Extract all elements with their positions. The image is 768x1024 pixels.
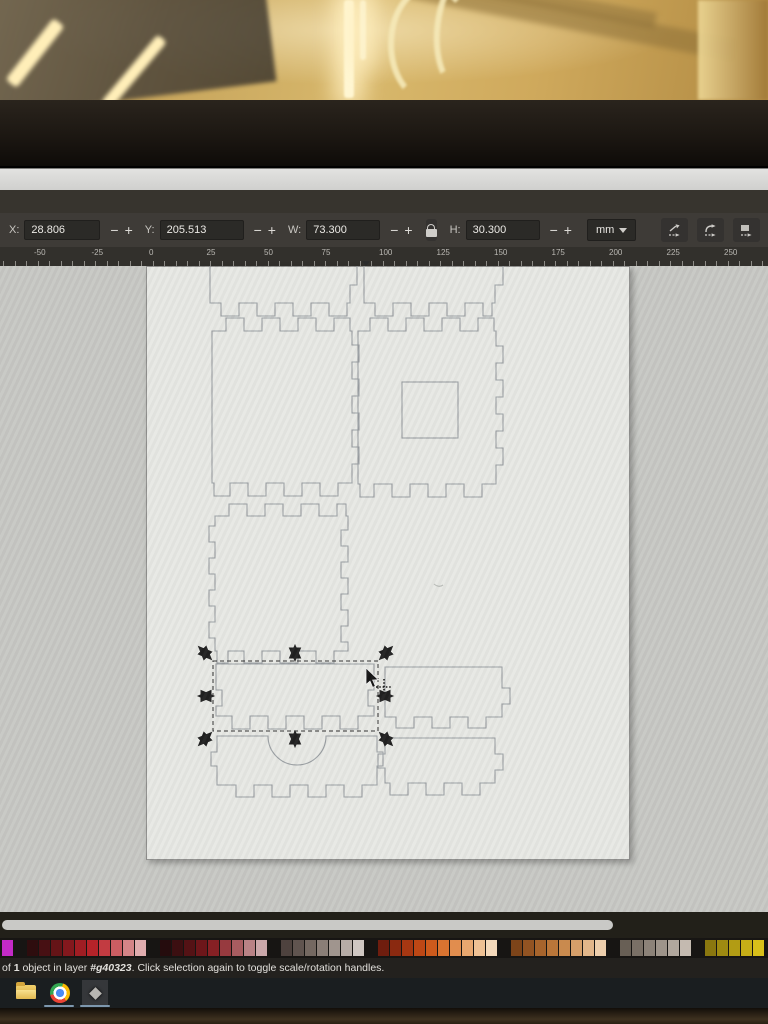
palette-swatch[interactable] <box>27 940 38 956</box>
selection-box[interactable] <box>213 661 378 731</box>
palette-swatch[interactable] <box>111 940 122 956</box>
ruler-label: 0 <box>149 248 153 257</box>
palette-swatch[interactable] <box>486 940 497 956</box>
palette-group <box>160 940 268 956</box>
palette-swatch[interactable] <box>329 940 340 956</box>
palette-swatch[interactable] <box>305 940 316 956</box>
screen-top-strip <box>0 168 768 191</box>
dust-mark <box>434 584 443 586</box>
window-chrome-strip <box>0 190 768 213</box>
palette-swatch[interactable] <box>208 940 219 956</box>
palette-swatch[interactable] <box>426 940 437 956</box>
ruler-label: 200 <box>609 248 622 257</box>
status-text: object in layer <box>20 962 91 974</box>
palette-group <box>705 940 765 956</box>
panel-outline-selected[interactable] <box>216 664 374 729</box>
spinner-minus-button[interactable]: − <box>107 223 121 237</box>
ruler-label: -25 <box>92 248 104 257</box>
move-gradients-toggle[interactable] <box>733 218 760 242</box>
ceiling-photo <box>0 0 768 100</box>
canvas-area[interactable] <box>0 266 768 912</box>
x-spinner: − + <box>107 223 135 237</box>
y-spinner: − + <box>251 223 279 237</box>
taskbar <box>0 978 768 1008</box>
ruler-label: 25 <box>207 248 216 257</box>
palette-swatch[interactable] <box>729 940 740 956</box>
h-label: H: <box>450 224 461 236</box>
palette-swatch[interactable] <box>63 940 74 956</box>
active-app-underline <box>80 1005 110 1007</box>
selection-handle-bottom-left[interactable] <box>200 734 210 744</box>
palette-swatch[interactable] <box>341 940 352 956</box>
scale-rounded-corners-toggle[interactable] <box>697 218 724 242</box>
status-bar: of 1 object in layer #g40323. Click sele… <box>0 958 768 978</box>
palette-swatch[interactable] <box>741 940 752 956</box>
palette-swatch[interactable] <box>75 940 86 956</box>
panel-outline-top-right[interactable] <box>364 266 503 316</box>
palette-swatch[interactable] <box>244 940 255 956</box>
y-field-group: Y: 205.513 − + <box>136 220 279 240</box>
panel-outline-right-middle[interactable] <box>385 667 510 728</box>
diamond-app-button[interactable] <box>82 980 108 1006</box>
color-palette <box>0 938 768 958</box>
padlock-icon <box>426 229 437 237</box>
palette-swatch[interactable] <box>571 940 582 956</box>
ruler-label: 50 <box>264 248 273 257</box>
rounded-corner-icon <box>703 223 719 237</box>
ruler-label: 75 <box>322 248 331 257</box>
panel-square-hole[interactable] <box>402 382 458 438</box>
panel-outline-large-right[interactable] <box>358 318 503 497</box>
monitor-top-bezel <box>0 100 768 168</box>
palette-swatch[interactable] <box>378 940 389 956</box>
spinner-plus-button[interactable]: + <box>401 223 415 237</box>
palette-swatch[interactable] <box>632 940 643 956</box>
palette-swatch[interactable] <box>402 940 413 956</box>
transform-toggle-buttons <box>652 218 768 242</box>
monitor-bottom-bezel <box>0 1008 768 1024</box>
palette-swatch[interactable] <box>668 940 679 956</box>
lamp-tube <box>360 0 366 60</box>
palette-swatch[interactable] <box>51 940 62 956</box>
h-input[interactable]: 30.300 <box>466 220 540 240</box>
palette-swatch[interactable] <box>474 940 485 956</box>
palette-swatch[interactable] <box>583 940 594 956</box>
palette-swatch[interactable] <box>2 940 13 956</box>
x-input[interactable]: 28.806 <box>24 220 100 240</box>
palette-swatch[interactable] <box>462 940 473 956</box>
palette-swatch[interactable] <box>644 940 655 956</box>
scale-stroke-width-toggle[interactable] <box>661 218 688 242</box>
palette-swatch[interactable] <box>256 940 267 956</box>
palette-swatch[interactable] <box>220 940 231 956</box>
palette-swatch[interactable] <box>172 940 183 956</box>
spinner-plus-button[interactable]: + <box>561 223 575 237</box>
palette-swatch[interactable] <box>656 940 667 956</box>
mouse-cursor <box>366 668 378 687</box>
panel-outline-middle-tall[interactable] <box>209 504 348 663</box>
status-layer-name: #g40323 <box>90 962 131 974</box>
palette-swatch[interactable] <box>595 940 606 956</box>
palette-group <box>2 940 14 956</box>
palette-swatch[interactable] <box>184 940 195 956</box>
h-field-group: H: 30.300 − + <box>441 220 575 240</box>
ruler-label: 100 <box>379 248 392 257</box>
w-spinner: − + <box>387 223 415 237</box>
palette-group <box>378 940 498 956</box>
ruler-label: 150 <box>494 248 507 257</box>
gradient-square-icon <box>739 223 755 237</box>
wall-pillar <box>698 0 768 100</box>
palette-swatch[interactable] <box>511 940 522 956</box>
y-label: Y: <box>145 224 155 236</box>
ruler[interactable]: -50-250255075100125150175200225250 <box>0 247 768 266</box>
monitor-photo: X: 28.806 − + Y: 205.513 − + W: 73.300 −… <box>0 0 768 1024</box>
spinner-plus-button[interactable]: + <box>122 223 136 237</box>
spinner-minus-button[interactable]: − <box>547 223 561 237</box>
panel-outline-top-left[interactable] <box>210 266 357 316</box>
palette-swatch[interactable] <box>317 940 328 956</box>
ruler-label: 225 <box>667 248 680 257</box>
palette-swatch[interactable] <box>293 940 304 956</box>
spinner-minus-button[interactable]: − <box>251 223 265 237</box>
drawing-svg <box>0 266 768 912</box>
palette-swatch[interactable] <box>680 940 691 956</box>
status-text: . Click selection again to toggle scale/… <box>132 962 385 974</box>
palette-group <box>620 940 692 956</box>
tool-controls-bar: X: 28.806 − + Y: 205.513 − + W: 73.300 −… <box>0 213 768 247</box>
palette-swatch[interactable] <box>717 940 728 956</box>
chevron-down-icon <box>619 228 627 233</box>
palette-group <box>27 940 147 956</box>
palette-swatch[interactable] <box>196 940 207 956</box>
palette-group <box>281 940 365 956</box>
palette-swatch[interactable] <box>135 940 146 956</box>
selection-handle-top-right[interactable] <box>381 648 391 658</box>
lamp-tube <box>344 0 354 98</box>
palette-swatch[interactable] <box>547 940 558 956</box>
palette-swatch[interactable] <box>535 940 546 956</box>
selection-handle-top-left[interactable] <box>200 648 210 658</box>
palette-swatch[interactable] <box>39 940 50 956</box>
unit-dropdown[interactable]: mm <box>587 219 636 241</box>
folder-icon[interactable] <box>16 985 36 999</box>
panel-outline-bottom-left-notched[interactable] <box>211 736 383 797</box>
palette-swatch[interactable] <box>523 940 534 956</box>
palette-swatch[interactable] <box>753 940 764 956</box>
spinner-minus-button[interactable]: − <box>387 223 401 237</box>
selection-handle-bottom-right[interactable] <box>381 734 391 744</box>
ruler-label: 250 <box>724 248 737 257</box>
ruler-label: 175 <box>552 248 565 257</box>
palette-swatch[interactable] <box>414 940 425 956</box>
h-spinner: − + <box>547 223 575 237</box>
palette-group <box>511 940 607 956</box>
scale-stroke-icon <box>667 223 683 237</box>
panel-outline-large-left[interactable] <box>212 318 359 496</box>
palette-swatch[interactable] <box>353 940 364 956</box>
palette-swatch[interactable] <box>559 940 570 956</box>
unit-value: mm <box>596 224 614 236</box>
lock-aspect-ratio-button[interactable] <box>426 219 437 241</box>
status-text: of <box>2 962 14 974</box>
ruler-label: 125 <box>437 248 450 257</box>
panel-outline-bottom-right[interactable] <box>378 738 503 795</box>
palette-swatch[interactable] <box>281 940 292 956</box>
w-label: W: <box>288 224 301 236</box>
palette-swatch[interactable] <box>438 940 449 956</box>
palette-swatch[interactable] <box>123 940 134 956</box>
palette-swatch[interactable] <box>232 940 243 956</box>
horizontal-scrollbar-thumb[interactable] <box>2 920 613 930</box>
palette-swatch[interactable] <box>450 940 461 956</box>
x-field-group: X: 28.806 − + <box>0 220 136 240</box>
horizontal-scrollbar-track[interactable] <box>0 912 768 938</box>
palette-swatch[interactable] <box>705 940 716 956</box>
chrome-icon[interactable] <box>50 983 70 1003</box>
ruler-label: -50 <box>34 248 46 257</box>
diamond-app-icon <box>89 987 102 1000</box>
y-input[interactable]: 205.513 <box>160 220 244 240</box>
x-label: X: <box>9 224 19 236</box>
spinner-plus-button[interactable]: + <box>265 223 279 237</box>
palette-swatch[interactable] <box>620 940 631 956</box>
palette-swatch[interactable] <box>99 940 110 956</box>
w-input[interactable]: 73.300 <box>306 220 380 240</box>
w-field-group: W: 73.300 − + <box>279 220 416 240</box>
palette-swatch[interactable] <box>160 940 171 956</box>
palette-swatch[interactable] <box>390 940 401 956</box>
active-app-underline <box>44 1005 74 1007</box>
palette-swatch[interactable] <box>87 940 98 956</box>
